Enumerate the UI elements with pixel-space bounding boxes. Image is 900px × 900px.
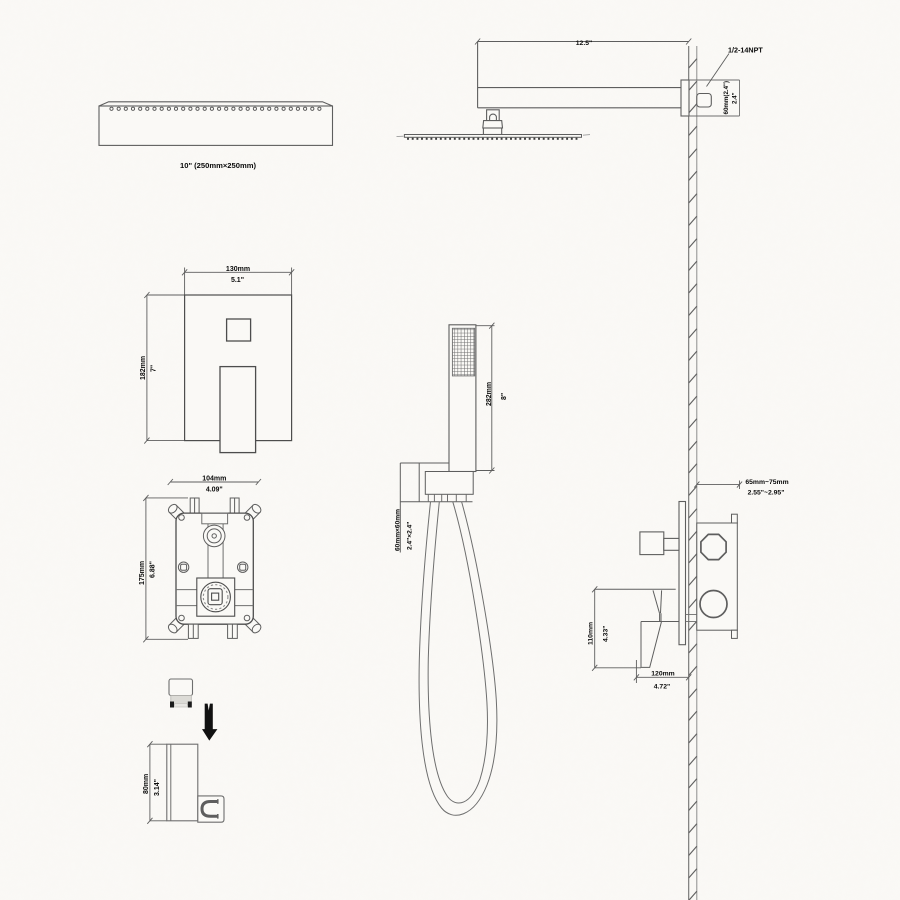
svg-text:60mm×60mm: 60mm×60mm (394, 509, 401, 551)
svg-text:130mm: 130mm (226, 266, 250, 273)
svg-text:80mm: 80mm (143, 774, 150, 794)
svg-text:5.1": 5.1" (231, 277, 244, 284)
svg-text:2.55"~2.95": 2.55"~2.95" (748, 490, 785, 497)
svg-text:1/2-14NPT: 1/2-14NPT (728, 46, 763, 55)
svg-text:120mm: 120mm (651, 671, 674, 678)
svg-text:104mm: 104mm (202, 475, 226, 482)
svg-text:12.5": 12.5" (576, 40, 592, 47)
svg-text:6.88": 6.88" (149, 561, 156, 578)
svg-text:182mm: 182mm (140, 356, 147, 380)
svg-text:2.4"×2.4": 2.4"×2.4" (406, 522, 413, 550)
svg-text:65mm~75mm: 65mm~75mm (745, 479, 788, 486)
svg-text:282mm: 282mm (486, 382, 493, 406)
svg-text:7": 7" (150, 365, 157, 372)
svg-text:4.33": 4.33" (603, 626, 610, 642)
svg-text:4.09": 4.09" (206, 487, 223, 494)
svg-text:2.4": 2.4" (732, 92, 739, 104)
svg-text:60mm(2.4"): 60mm(2.4") (723, 81, 730, 115)
svg-text:8": 8" (501, 393, 508, 400)
svg-text:110mm: 110mm (588, 622, 595, 645)
svg-text:4.72": 4.72" (654, 684, 670, 691)
svg-text:175mm: 175mm (139, 561, 146, 585)
svg-text:10" (250mm×250mm): 10" (250mm×250mm) (180, 161, 256, 170)
svg-text:3.14": 3.14" (154, 779, 161, 796)
